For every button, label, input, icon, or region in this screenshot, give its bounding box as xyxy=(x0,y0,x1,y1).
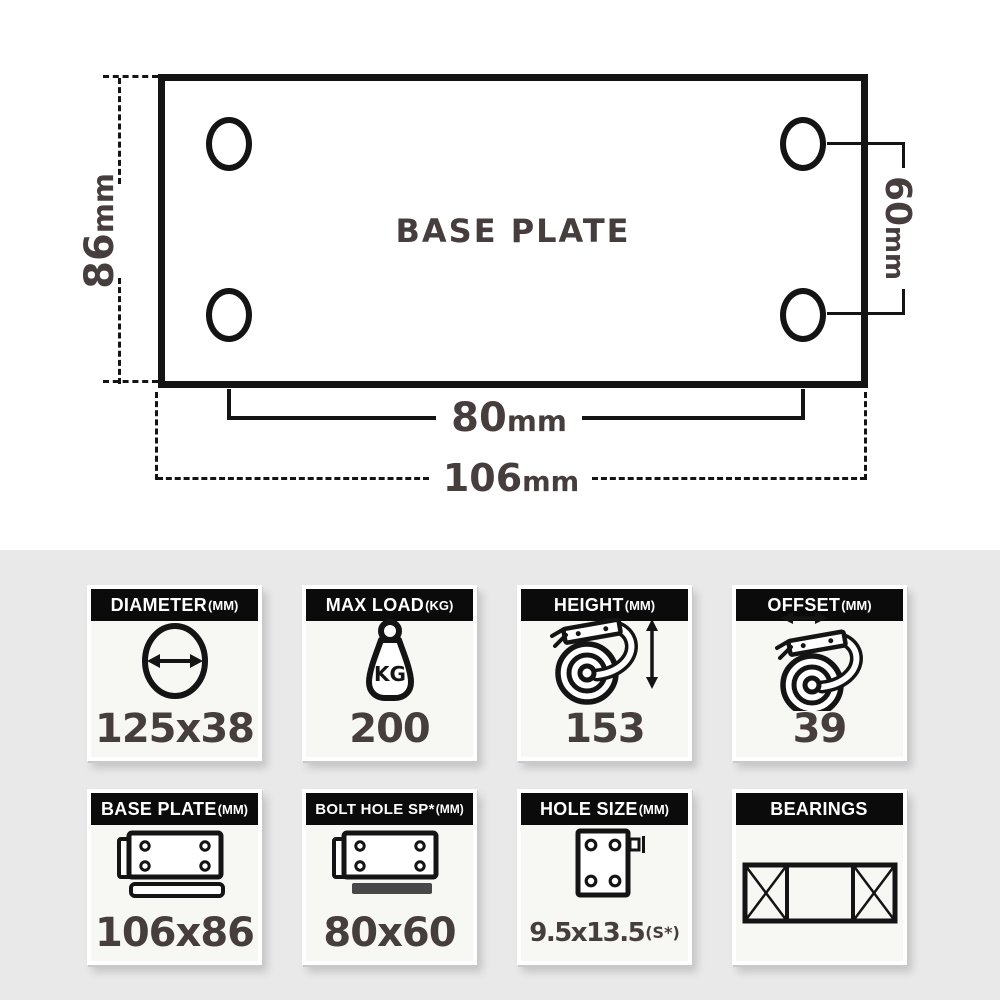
spec-card-bolt-hole-spacing: BOLT HOLE SP* (MM) 80x60 xyxy=(302,789,477,965)
dim-label-height: 86mm xyxy=(80,173,120,289)
card-header: BASE PLATE (MM) xyxy=(91,793,258,825)
dim-unit: mm xyxy=(86,173,120,233)
spec-card-hole-size: HOLE SIZE (MM) 9.5x13.5(S*) xyxy=(517,789,692,965)
dim-line xyxy=(592,477,866,480)
card-unit: (MM) xyxy=(625,598,655,613)
diameter-arrow-circle-icon xyxy=(91,621,258,701)
caster-spec-infographic: BASE PLATE 86mm 60mm 80mm 106mm DIAMETER… xyxy=(0,0,1000,1000)
dim-unit: mm xyxy=(879,226,909,280)
dim-line xyxy=(155,392,158,480)
caster-height-arrow-icon xyxy=(521,621,688,701)
card-label: BEARINGS xyxy=(770,799,867,820)
bolt-hole-bottom-right xyxy=(780,288,826,342)
card-label: BOLT HOLE SP* xyxy=(315,801,434,818)
bolt-hole-top-left xyxy=(206,117,252,171)
base-plate-icon xyxy=(91,825,258,905)
dim-value: 60 xyxy=(877,176,918,226)
card-value: 9.5x13.5(S*) xyxy=(521,905,688,961)
dim-value: 106 xyxy=(443,456,522,500)
bolt-hole-spacing-icon xyxy=(306,825,473,905)
dim-line xyxy=(582,416,805,420)
card-value: 80x60 xyxy=(306,905,473,961)
card-header: BEARINGS xyxy=(736,793,903,825)
dim-elbow xyxy=(902,289,905,315)
roller-bearing-icon xyxy=(736,825,903,961)
card-unit: (MM) xyxy=(218,802,248,817)
base-plate-outline: BASE PLATE xyxy=(158,74,868,388)
dim-label-hole-spacing-h: 80mm xyxy=(451,398,567,438)
spec-card-bearings: BEARINGS xyxy=(732,789,907,965)
dim-line xyxy=(118,278,121,384)
card-header: HOLE SIZE (MM) xyxy=(521,793,688,825)
svg-text:KG: KG xyxy=(374,662,406,686)
spec-card-max-load: MAX LOAD (KG) KG 200 xyxy=(302,585,477,761)
dim-value: 80 xyxy=(451,395,507,441)
dim-line xyxy=(227,416,436,420)
card-value: 106x86 xyxy=(91,905,258,961)
dim-line xyxy=(827,142,905,145)
hole-size-icon xyxy=(521,825,688,905)
card-label: HEIGHT xyxy=(554,595,624,616)
dim-label-plate-width: 106mm xyxy=(443,459,579,497)
card-unit: (KG) xyxy=(425,598,453,613)
card-value: 39 xyxy=(736,701,903,757)
plate-title: BASE PLATE xyxy=(395,212,630,250)
spec-card-height: HEIGHT (MM) xyxy=(517,585,692,761)
spec-card-diameter: DIAMETER (MM) 125x38 xyxy=(87,585,262,761)
dim-value: 86 xyxy=(77,233,123,289)
card-unit: (MM) xyxy=(208,598,238,613)
card-unit: (MM) xyxy=(436,802,464,816)
card-label: MAX LOAD xyxy=(326,595,424,616)
dim-line xyxy=(118,78,121,184)
card-label: HOLE SIZE xyxy=(540,799,638,820)
dim-unit: mm xyxy=(507,404,567,438)
dim-line xyxy=(864,392,867,480)
caster-offset-arrow-icon xyxy=(736,621,903,701)
spec-card-offset: OFFSET (MM) xyxy=(732,585,907,761)
dim-elbow xyxy=(902,142,905,168)
card-unit: (MM) xyxy=(639,802,669,817)
card-header: DIAMETER (MM) xyxy=(91,589,258,621)
card-value: 200 xyxy=(306,701,473,757)
bolt-hole-bottom-left xyxy=(206,288,252,342)
kg-weight-icon: KG xyxy=(306,621,473,701)
dim-line xyxy=(827,312,905,315)
card-value-suffix: (S*) xyxy=(645,925,680,941)
dim-tick xyxy=(103,380,158,383)
dim-unit: mm xyxy=(522,467,579,498)
dim-tick xyxy=(103,75,158,78)
card-header: BOLT HOLE SP* (MM) xyxy=(306,793,473,825)
dim-label-hole-spacing-v: 60mm xyxy=(879,176,915,280)
card-label: DIAMETER xyxy=(111,595,207,616)
bolt-hole-top-right xyxy=(780,117,826,171)
dim-line xyxy=(157,477,429,480)
card-value: 153 xyxy=(521,701,688,757)
card-label: BASE PLATE xyxy=(101,799,217,820)
card-value: 125x38 xyxy=(91,701,258,757)
spec-card-base-plate: BASE PLATE (MM) 106x86 xyxy=(87,789,262,965)
